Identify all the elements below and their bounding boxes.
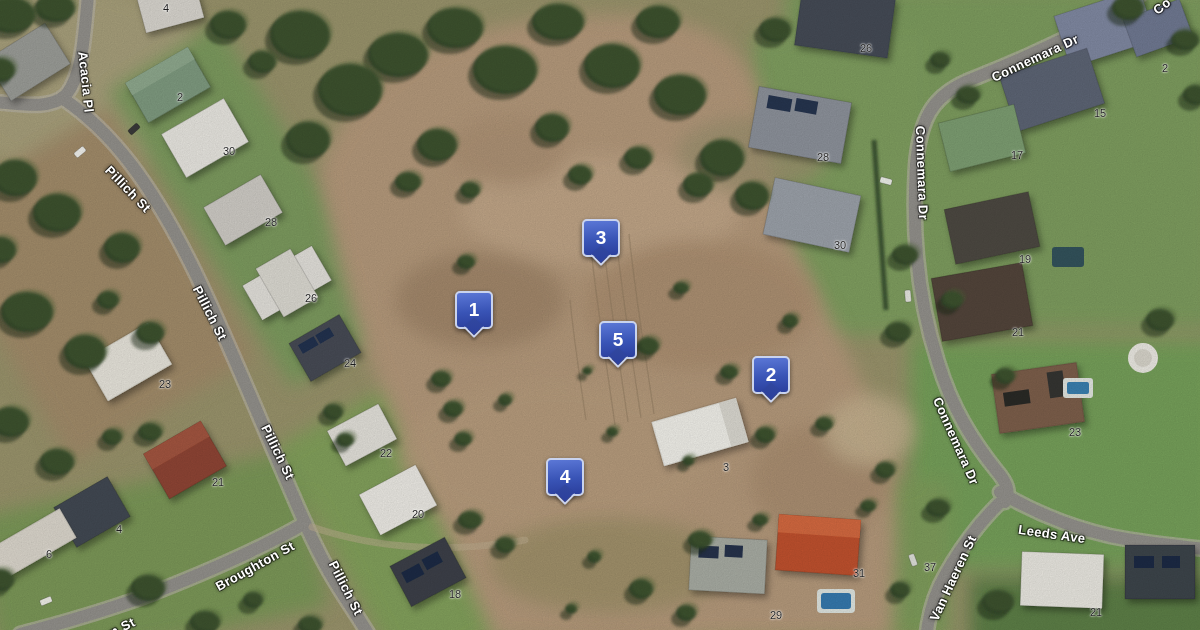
map-marker-1[interactable]: 1	[455, 291, 493, 329]
map-marker-4[interactable]: 4	[546, 458, 584, 496]
map-marker-2[interactable]: 2	[752, 356, 790, 394]
map-marker-3[interactable]: 3	[582, 219, 620, 257]
map-canvas[interactable]: Acacia PlPillich StPillich StPillich StP…	[0, 0, 1200, 630]
map-marker-5[interactable]: 5	[599, 321, 637, 359]
satellite-imagery	[0, 0, 1200, 630]
